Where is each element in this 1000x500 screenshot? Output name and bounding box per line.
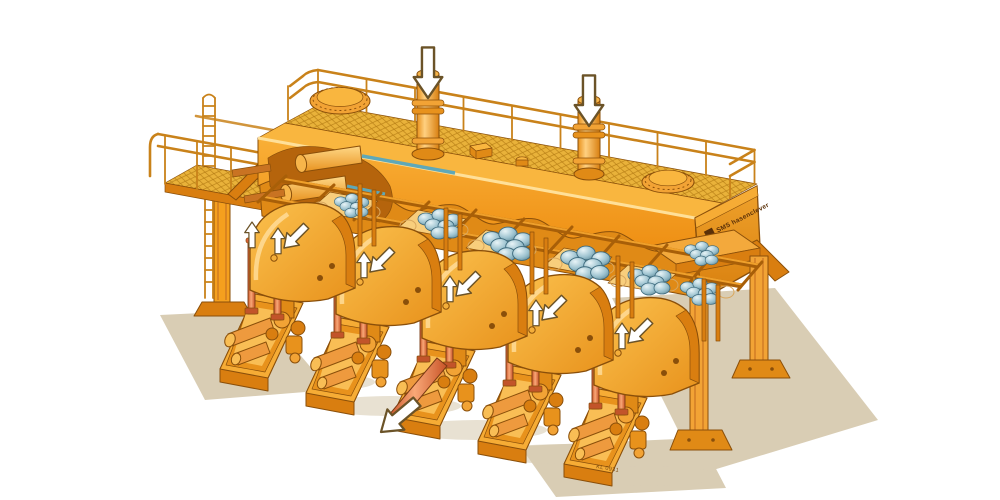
cylinder-collar: [573, 158, 605, 164]
bolt: [770, 367, 774, 371]
cylinder-collar: [412, 108, 444, 114]
support-column-left: [214, 200, 230, 302]
bolt: [748, 367, 752, 371]
cylinder-collar: [412, 100, 444, 106]
column-base-plate: [194, 302, 252, 316]
cylinder-collar: [412, 138, 444, 144]
cylinder-collar: [573, 132, 605, 138]
bolt: [711, 438, 715, 442]
deck-knob: [516, 160, 528, 166]
press-cylinder-2: [573, 75, 605, 180]
manhole-lid-2: [649, 170, 687, 186]
press-cylinder-1: [412, 47, 444, 160]
leg-base-plate: [732, 360, 790, 378]
machine-illustration: SMS hasenclever: [0, 0, 1000, 500]
leg-base-plate: [670, 430, 732, 450]
bolt: [687, 438, 691, 442]
cylinder-flange: [574, 168, 604, 180]
cylinder-flange: [412, 148, 444, 160]
manhole-lid-1: [317, 88, 363, 107]
illustration-canvas: SMS hasenclever: [0, 0, 1000, 500]
